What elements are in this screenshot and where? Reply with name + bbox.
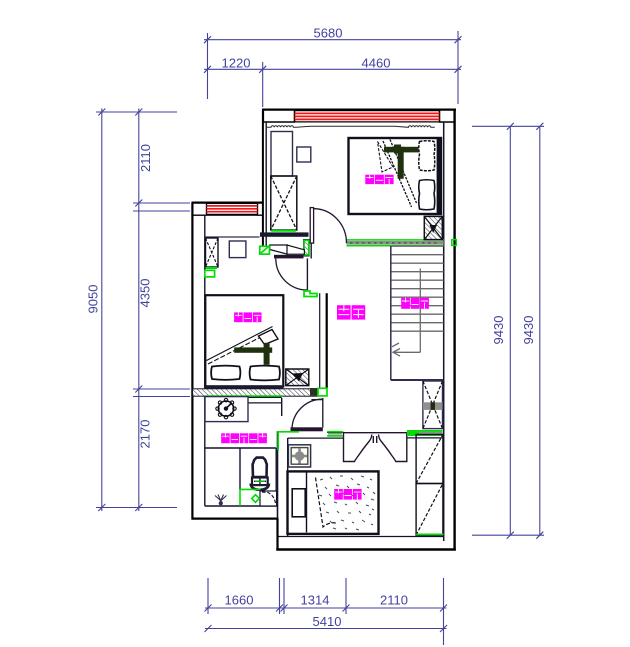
- svg-text:2170: 2170: [138, 420, 153, 449]
- svg-text:5410: 5410: [313, 614, 342, 629]
- svg-text:9050: 9050: [86, 285, 101, 314]
- svg-text:9430: 9430: [521, 316, 536, 345]
- svg-text:1220: 1220: [222, 56, 251, 71]
- svg-text:4460: 4460: [362, 56, 391, 71]
- svg-text:5680: 5680: [314, 26, 343, 41]
- svg-text:2110: 2110: [138, 144, 153, 172]
- svg-text:4350: 4350: [138, 279, 153, 308]
- svg-text:2110: 2110: [380, 593, 408, 608]
- svg-text:1660: 1660: [225, 593, 254, 608]
- svg-text:9430: 9430: [491, 316, 506, 345]
- svg-text:1314: 1314: [301, 593, 330, 608]
